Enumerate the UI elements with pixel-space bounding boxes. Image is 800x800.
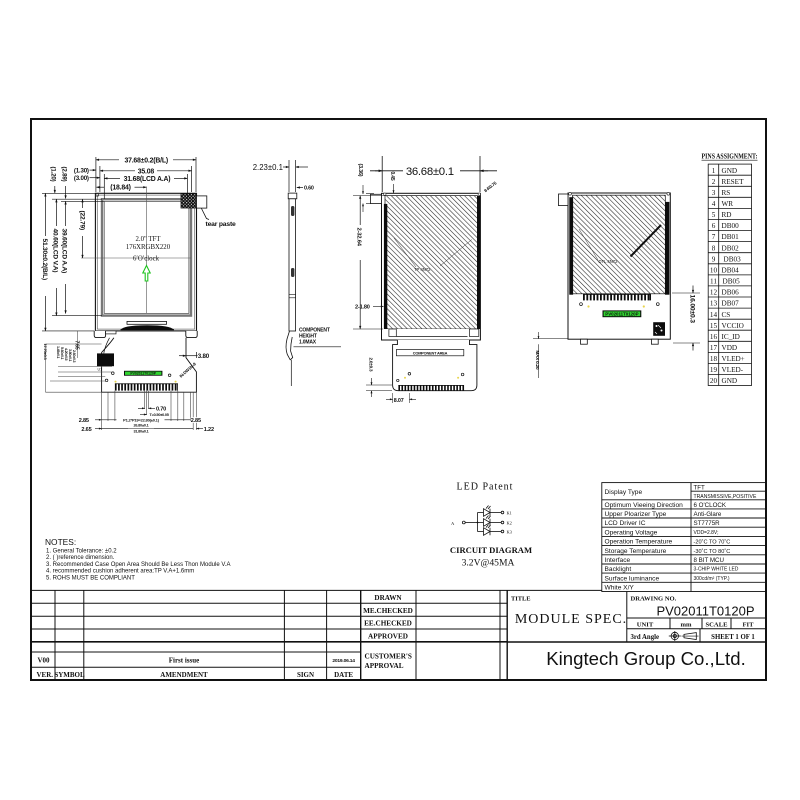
svg-text:3. Recommended Case Open A: 3. Recommended Case Open Area Should Be …	[46, 562, 230, 568]
svg-text:Backlight: Backlight	[605, 566, 632, 573]
svg-text:14: 14	[710, 311, 718, 319]
svg-text:P1.2*P19=22.80(±0.1): P1.2*P19=22.80(±0.1)	[123, 418, 160, 423]
svg-text:40.60(LCD V.A): 40.60(LCD V.A)	[51, 229, 58, 273]
svg-text:2-32.64: 2-32.64	[355, 228, 361, 247]
svg-text:2. ( )reference dimension: 2. ( )reference dimension.	[46, 555, 115, 561]
svg-text:37.68±0.2(B/L): 37.68±0.2(B/L)	[124, 157, 168, 164]
svg-text:2: 2	[712, 178, 716, 186]
svg-text:(3.36): (3.36)	[357, 164, 363, 177]
svg-text:7: 7	[712, 233, 716, 241]
svg-text:3-CHIP WHITE LED: 3-CHIP WHITE LED	[694, 567, 739, 573]
svg-text:2.23±0.1: 2.23±0.1	[253, 163, 283, 172]
svg-text:-30˚C TO 80˚C: -30˚C TO 80˚C	[694, 548, 731, 555]
svg-text:3rd Angle: 3rd Angle	[631, 634, 660, 641]
svg-text:DB04: DB04	[722, 267, 740, 275]
svg-text:(3.00): (3.00)	[74, 175, 89, 182]
svg-text:VER.: VER.	[37, 671, 54, 679]
svg-text:13: 13	[710, 300, 718, 308]
svg-text:4. recommended cushion adhe: 4. recommended cushion adherent area:TP …	[46, 569, 194, 575]
svg-text:DTL 4N72: DTL 4N72	[599, 259, 619, 264]
svg-text:DRAWING NO.: DRAWING NO.	[631, 596, 677, 603]
svg-text:WR: WR	[722, 200, 734, 208]
svg-text:2.0±0.3: 2.0±0.3	[369, 358, 374, 373]
svg-text:26.80±0.1: 26.80±0.1	[133, 424, 148, 428]
svg-text:0.60: 0.60	[304, 186, 314, 192]
svg-text:2.65: 2.65	[81, 427, 91, 433]
svg-text:1. General Tolerance: ±0.2: 1. General Tolerance: ±0.2	[46, 549, 117, 555]
svg-text:RD: RD	[722, 211, 732, 219]
svg-text:1.45±0.1: 1.45±0.1	[56, 346, 60, 359]
svg-text:3.2V@45MA: 3.2V@45MA	[462, 558, 515, 569]
svg-text:8 BIT MCU: 8 BIT MCU	[694, 557, 724, 564]
svg-text:First issue: First issue	[169, 657, 200, 665]
svg-text:8: 8	[712, 244, 716, 252]
svg-text:176XRGBX220: 176XRGBX220	[126, 244, 171, 251]
svg-text:0.70: 0.70	[156, 406, 166, 412]
svg-text:GND: GND	[722, 377, 738, 385]
svg-text:DB01: DB01	[722, 233, 740, 241]
svg-text:20: 20	[710, 377, 718, 385]
svg-text:2019.06.14: 2019.06.14	[332, 658, 355, 664]
svg-text:PINS ASSIGNMENT:: PINS ASSIGNMENT:	[702, 154, 758, 161]
svg-text:APPROVED: APPROVED	[368, 633, 408, 641]
svg-text:10: 10	[710, 267, 718, 275]
svg-text:31.68(LCD A.A): 31.68(LCD A.A)	[124, 176, 171, 183]
svg-text:DB03: DB03	[724, 255, 742, 263]
svg-text:6 O'CLOCK: 6 O'CLOCK	[694, 502, 727, 509]
svg-text:6: 6	[712, 222, 716, 230]
svg-text:(18.84): (18.84)	[110, 185, 130, 192]
svg-text:V00: V00	[38, 657, 51, 665]
svg-text:SHEET 1 OF 1: SHEET 1 OF 1	[711, 634, 755, 641]
svg-text:U1: U1	[98, 368, 103, 372]
svg-text:3.80: 3.80	[198, 353, 210, 360]
svg-text:AMENDMENT: AMENDMENT	[160, 671, 208, 679]
svg-text:16.00±0.3: 16.00±0.3	[689, 295, 696, 324]
svg-text:PV02011T0120P: PV02011T0120P	[656, 604, 754, 619]
svg-text:CUSTOMER'S: CUSTOMER'S	[365, 652, 412, 660]
svg-text:1.0MAX: 1.0MAX	[299, 340, 317, 346]
svg-text:GND: GND	[722, 167, 738, 175]
svg-text:17: 17	[710, 344, 718, 352]
svg-text:LCD Driver IC: LCD Driver IC	[605, 520, 646, 527]
svg-text:TFT: TFT	[694, 484, 706, 491]
svg-text:tear paste: tear paste	[206, 221, 237, 228]
svg-text:LED Patent: LED Patent	[457, 482, 514, 493]
svg-text:Operating Voltage: Operating Voltage	[605, 529, 658, 536]
svg-text:K3: K3	[507, 530, 513, 535]
svg-text:VLED+: VLED+	[722, 355, 745, 363]
svg-text:TRANSMISSIVE,POSITIVE: TRANSMISSIVE,POSITIVE	[694, 494, 757, 500]
svg-text:mm: mm	[681, 621, 692, 628]
svg-text:NOTES:: NOTES:	[45, 537, 76, 547]
svg-text:5. ROHS MUST BE COMPLIANT: 5. ROHS MUST BE COMPLIANT	[46, 575, 135, 581]
svg-text:5.60±0.1: 5.60±0.1	[60, 347, 64, 360]
svg-text:DB02: DB02	[722, 244, 740, 252]
svg-text:IC_ID: IC_ID	[722, 333, 740, 341]
svg-text:T=0.50±0.05: T=0.50±0.05	[150, 413, 169, 417]
svg-text:PV02011T0120P: PV02011T0120P	[130, 372, 156, 376]
svg-text:DB07: DB07	[722, 300, 740, 308]
svg-text:2.60±0.3: 2.60±0.3	[72, 350, 76, 363]
svg-text:6′O′clock: 6′O′clock	[133, 256, 160, 263]
svg-text:SCALE: SCALE	[706, 621, 729, 628]
svg-text:DB05: DB05	[723, 278, 741, 286]
svg-text:Upper Ploarizer Type: Upper Ploarizer Type	[605, 511, 667, 518]
svg-text:-20˚C TO 70˚C: -20˚C TO 70˚C	[694, 539, 731, 546]
svg-text:VDD: VDD	[722, 344, 738, 352]
svg-text:19: 19	[710, 366, 718, 374]
svg-text:DB00: DB00	[722, 222, 740, 230]
svg-text:2-1.80: 2-1.80	[355, 305, 370, 311]
svg-text:36.68±0.1: 36.68±0.1	[406, 166, 454, 178]
svg-text:Kingtech Group Co.,Ltd.: Kingtech Group Co.,Ltd.	[546, 648, 745, 669]
svg-text:White X/Y: White X/Y	[605, 585, 635, 592]
svg-text:1: 1	[712, 167, 716, 175]
svg-text:2.85: 2.85	[191, 418, 201, 424]
svg-text:CIRCUIT DIAGRAM: CIRCUIT DIAGRAM	[450, 545, 532, 555]
svg-text:4.20±0.5: 4.20±0.5	[64, 348, 68, 361]
svg-text:Display Type: Display Type	[605, 489, 643, 496]
svg-text:TITLE: TITLE	[511, 596, 531, 603]
svg-text:9: 9	[712, 255, 716, 263]
svg-text:3.80±0.1: 3.80±0.1	[68, 349, 72, 362]
svg-text:0.45: 0.45	[389, 172, 395, 181]
svg-text:DRAWN: DRAWN	[374, 594, 402, 602]
svg-text:EE.CHECKED: EE.CHECKED	[364, 620, 412, 628]
svg-text:300cd/m² (TYP.): 300cd/m² (TYP.)	[694, 576, 730, 582]
svg-text:17.70±0.3: 17.70±0.3	[43, 344, 48, 361]
svg-text:(2.89): (2.89)	[61, 167, 68, 182]
svg-text:Surface luminance: Surface luminance	[605, 575, 660, 582]
svg-text:Interface: Interface	[605, 557, 631, 564]
svg-text:MAX 0.20: MAX 0.20	[535, 351, 540, 370]
svg-text:(1.20): (1.20)	[50, 167, 57, 182]
svg-text:RS: RS	[722, 189, 731, 197]
svg-text:51.30±0.2(B/L): 51.30±0.2(B/L)	[41, 239, 48, 281]
svg-text:ME.CHECKED: ME.CHECKED	[363, 607, 413, 615]
svg-text:39.60(LCD A.A): 39.60(LCD A.A)	[61, 229, 68, 274]
svg-text:TP 4N72: TP 4N72	[414, 267, 431, 272]
svg-text:18: 18	[710, 355, 718, 363]
svg-text:Operation Temperature: Operation Temperature	[605, 539, 673, 546]
svg-text:VLED-: VLED-	[722, 366, 744, 374]
svg-text:2.85: 2.85	[79, 418, 89, 424]
svg-text:Anti-Glare: Anti-Glare	[694, 511, 722, 518]
svg-text:35.08: 35.08	[138, 168, 155, 175]
svg-text:4: 4	[712, 200, 716, 208]
svg-text:1.22: 1.22	[204, 427, 214, 433]
svg-text:16: 16	[710, 333, 718, 341]
svg-text:ST7775R: ST7775R	[694, 520, 721, 527]
svg-text:SYMBOL: SYMBOL	[54, 671, 85, 679]
svg-text:31.80±0.1: 31.80±0.1	[133, 429, 148, 433]
svg-text:CS: CS	[722, 311, 731, 319]
svg-text:(22.79): (22.79)	[79, 211, 86, 231]
svg-text:VCCIO: VCCIO	[722, 322, 744, 330]
svg-text:UNIT: UNIT	[637, 621, 654, 628]
svg-text:DATE: DATE	[334, 671, 353, 679]
svg-text:11: 11	[710, 278, 717, 286]
svg-text:2.0" TFT: 2.0" TFT	[136, 236, 162, 243]
svg-text:MODULE SPEC.: MODULE SPEC.	[515, 612, 627, 627]
svg-text:K2: K2	[507, 521, 512, 526]
svg-text:12: 12	[710, 289, 718, 297]
svg-text:K1: K1	[507, 511, 512, 516]
svg-text:RESET: RESET	[722, 178, 745, 186]
svg-text:VDD=2.8V;: VDD=2.8V;	[694, 530, 719, 536]
svg-text:FIT: FIT	[743, 621, 755, 628]
svg-text:APPROVAL: APPROVAL	[365, 662, 404, 670]
svg-text:PV02011T0120P: PV02011T0120P	[605, 312, 638, 317]
svg-text:Storage Temperature: Storage Temperature	[605, 548, 667, 555]
svg-text:7.65: 7.65	[74, 341, 80, 350]
svg-text:3: 3	[712, 189, 716, 197]
svg-text:(1.30): (1.30)	[74, 167, 89, 174]
svg-text:5: 5	[712, 211, 716, 219]
svg-text:DB06: DB06	[722, 289, 740, 297]
svg-text:8.07: 8.07	[394, 398, 404, 404]
svg-text:COMPONENT AREA: COMPONENT AREA	[413, 350, 448, 355]
svg-text:Optimum Vieeing Direction: Optimum Vieeing Direction	[605, 502, 684, 509]
svg-text:15: 15	[710, 322, 718, 330]
svg-text:SIGN: SIGN	[297, 671, 314, 679]
